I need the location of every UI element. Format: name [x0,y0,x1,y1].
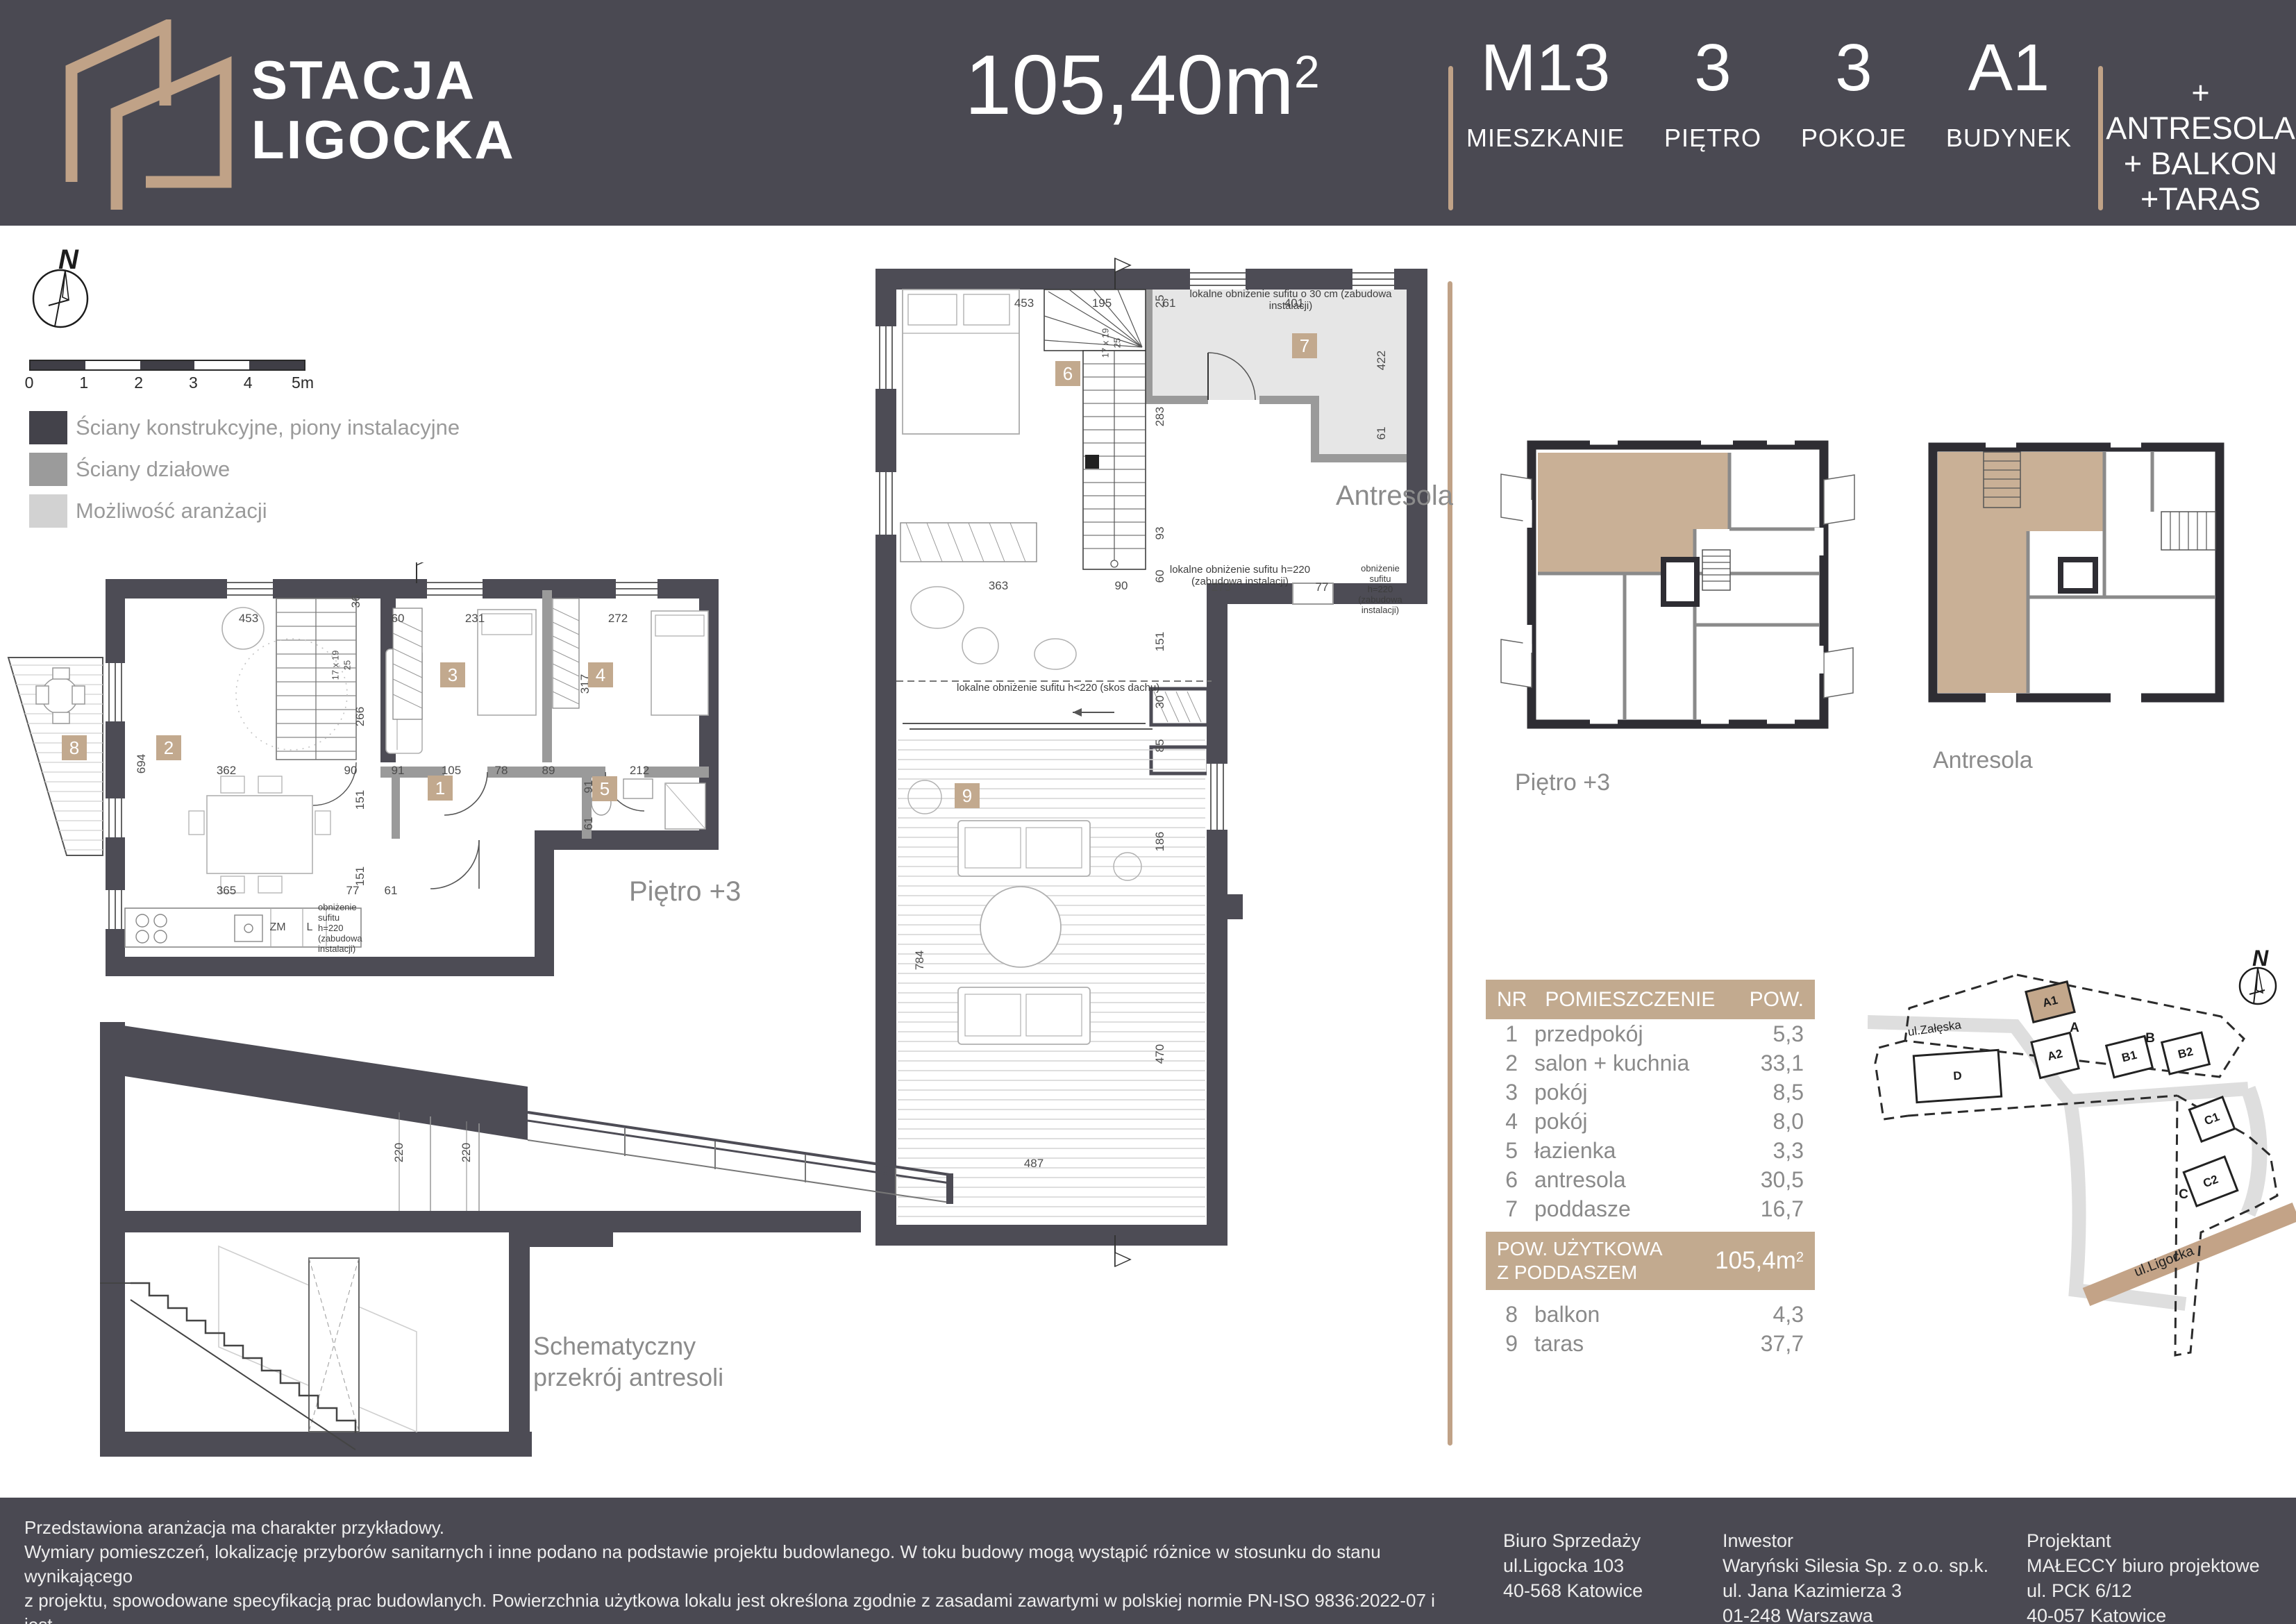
header-stat: M13MIESZKANIE [1466,33,1625,153]
room-number-badge: 4 [588,662,613,687]
building-plan-antresola-overview [1920,434,2232,767]
note-line: obniżenie [318,903,364,913]
scalebar-segment [85,361,140,369]
footer-line: Biuro Sprzedaży [1503,1528,1643,1553]
dim-label: 61 [385,884,398,898]
scalebar-label: 2 [134,374,143,392]
dim-label: ZM [269,921,285,934]
sitemap-area-label-a: A [2070,1021,2079,1036]
stat-value: 3 [1664,33,1761,103]
note-line: (zabudowa instalacji) [1156,576,1324,587]
scalebar-label: 1 [79,374,88,392]
cell-name: poddasze [1534,1196,1631,1222]
brand-logo-icon [56,19,237,222]
dim-label: 212 [630,764,649,778]
note-line: sufitu h=220 [318,913,364,934]
room-table-rows: 1przedpokój5,32salon + kuchnia33,13pokój… [1486,1019,1815,1223]
dim-label: 61 [1375,427,1389,440]
header-stat: 3POKOJE [1801,33,1907,153]
ceiling-note: lokalne obniżenie sufitu o 30 cm (zabudo… [1182,288,1399,312]
disclaimer: Przedstawiona aranżacja ma charakter prz… [24,1516,1455,1624]
stat-value: A1 [1946,33,2072,103]
legend-item: Ściany konstrukcyjne, piony instalacyjne [29,411,460,444]
table-row: 6antresola30,5 [1486,1165,1815,1194]
dim-label: 17 x 19 [330,651,341,680]
dim-label: 151 [1153,632,1167,651]
cell-name: balkon [1534,1302,1600,1328]
room-number-badge: 3 [440,662,465,687]
wall-legend: Ściany konstrukcyjne, piony instalacyjne… [29,411,460,536]
header-stats: M13MIESZKANIE3PIĘTRO3POKOJEA1BUDYNEK [1466,33,2072,153]
dim-label: 186 [1153,832,1167,851]
cell-name: antresola [1534,1167,1626,1193]
table-row: 1przedpokój5,3 [1486,1019,1815,1048]
cell-name: taras [1534,1331,1584,1357]
dim-label: 220 [460,1143,474,1162]
legend-swatch [29,411,67,444]
table-summary: POW. UŻYTKOWA Z PODDASZEM 105,4m2 [1486,1232,1815,1290]
header-extras: + ANTRESOLA+ BALKON+TARAS [2105,75,2296,217]
section-label-line: Schematyczny [533,1330,723,1362]
stat-label: POKOJE [1801,124,1907,153]
legend-item: Ściany działowe [29,453,460,486]
note-line: h=220 [1350,585,1411,595]
cell-nr: 1 [1497,1021,1518,1047]
stat-value: M13 [1466,33,1625,103]
dim-label: 85 [1153,739,1167,753]
dim-label: 220 [392,1143,406,1162]
table-row: 4pokój8,0 [1486,1107,1815,1136]
dim-label: 195 [1092,296,1112,310]
legend-swatch [29,453,67,486]
brand-name: STACJA LIGOCKA [251,50,516,169]
footer-line: 40-057 Katowice [2027,1603,2260,1624]
dim-label: 363 [989,579,1008,593]
footer-line: 40-568 Katowice [1503,1578,1643,1603]
dim-label: 61 [582,817,596,830]
note-line: instalacji) [1350,605,1411,616]
header-divider [2098,66,2103,210]
scalebar-segment [140,361,195,369]
cell-pow: 4,3 [1773,1302,1804,1328]
legend-label: Ściany działowe [76,457,230,482]
dim-label: 231 [465,612,485,626]
col-name: POMIESZCZENIE [1545,988,1715,1012]
footer-line: ul. Jana Kazimierza 3 [1723,1578,1988,1603]
stat-label: MIESZKANIE [1466,124,1625,153]
summary-label: POW. UŻYTKOWA Z PODDASZEM [1497,1237,1663,1284]
dim-label: 151 [353,867,367,886]
cell-nr: 4 [1497,1109,1518,1135]
sitemap-n-label: N [2252,946,2268,971]
cell-nr: 3 [1497,1080,1518,1105]
header-extra-line: + ANTRESOLA [2105,75,2296,146]
cell-nr: 2 [1497,1050,1518,1076]
footer-line: Waryński Silesia Sp. z o.o. sp.k. [1723,1553,1988,1578]
cell-name: pokój [1534,1109,1588,1135]
vertical-divider [1448,281,1452,1446]
dim-label: 78 [495,764,508,778]
dim-label: 17 x 19 [1100,328,1111,358]
building-plan-pietro3-overview [1493,437,1861,764]
cell-pow: 33,1 [1761,1050,1804,1076]
scalebar-segment [194,361,249,369]
cell-name: salon + kuchnia [1534,1050,1689,1076]
footer-line: MAŁECCY biuro projektowe [2027,1553,2260,1578]
room-number-badge: 5 [592,776,617,801]
scale-bar [29,360,305,371]
stat-value: 3 [1801,33,1907,103]
dim-label: 694 [135,754,149,773]
floor-plan-pietro3 [0,562,778,1000]
cell-name: przedpokój [1534,1021,1643,1047]
dim-label: 266 [353,707,367,726]
ceiling-note: obniżenie sufituh=220(zabudowainstalacji… [1350,564,1411,616]
cell-name: łazienka [1534,1138,1616,1164]
footer-line: ul. PCK 6/12 [2027,1578,2260,1603]
cell-pow: 3,3 [1773,1138,1804,1164]
room-number-badge: 8 [62,735,87,760]
cell-pow: 8,5 [1773,1080,1804,1105]
cell-nr: 7 [1497,1196,1518,1222]
scalebar-label: 0 [25,374,34,392]
cell-pow: 30,5 [1761,1167,1804,1193]
legend-label: Możliwość aranżacji [76,499,267,524]
scalebar-segment [249,361,304,369]
note-line: (zabudowa [318,934,364,944]
note-line: lokalne obniżenie sufitu h<220 (skos dac… [957,682,1234,694]
dim-label: 60 [392,612,405,626]
note-line: obniżenie sufitu [1350,564,1411,585]
section-drawing [69,1014,979,1468]
header-extra-line: +TARAS [2105,181,2296,217]
dim-label: 283 [1153,407,1167,426]
table-row: 8balkon4,3 [1486,1300,1815,1329]
room-number-badge: 9 [955,783,980,808]
dim-label: 89 [542,764,555,778]
summary-value: 105,4m2 [1715,1247,1804,1275]
cell-nr: 5 [1497,1138,1518,1164]
dim-label: 90 [344,764,358,778]
ceiling-note: lokalne obniżenie sufitu h<220 (skos dac… [957,682,1234,694]
footer-line: Projektant [2027,1528,2260,1553]
scalebar-label: 3 [189,374,198,392]
note-line: lokalne obniżenie sufitu o 30 cm (zabudo… [1182,288,1399,312]
dim-label: 93 [1153,527,1167,540]
table-row: 2salon + kuchnia33,1 [1486,1048,1815,1078]
legend-swatch [29,494,67,528]
col-pow: POW. [1750,988,1804,1012]
compass-n-label: N [58,244,78,276]
dim-label: L [307,921,313,934]
table-row: 3pokój8,5 [1486,1078,1815,1107]
room-number-badge: 7 [1292,333,1317,358]
scalebar-label: 4 [244,374,253,392]
dim-label: 90 [1115,579,1128,593]
ceiling-note: obniżeniesufitu h=220(zabudowainstalacji… [318,903,364,955]
room-number-badge: 2 [156,735,181,760]
dim-label: 151 [353,790,367,810]
dim-label: 422 [1375,351,1389,370]
footer-column: InwestorWaryński Silesia Sp. z o.o. sp.k… [1723,1528,1988,1624]
scalebar-segment [31,361,85,369]
legend-label: Ściany konstrukcyjne, piony instalacyjne [76,415,460,440]
brand-line2: LIGOCKA [251,110,516,169]
col-nr: NR [1497,988,1527,1012]
room-number-badge: 1 [428,776,453,801]
dim-label: 470 [1153,1044,1167,1064]
disclaimer-line: Przedstawiona aranżacja ma charakter prz… [24,1516,1455,1540]
ceiling-note: lokalne obniżenie sufitu h=220(zabudowa … [1156,564,1324,588]
header-divider [1448,66,1453,210]
note-line: instalacji) [318,944,364,955]
plan-label: Piętro +3 [629,876,741,907]
cell-pow: 5,3 [1773,1021,1804,1047]
plan-sheet: STACJA LIGOCKA 105,40m2 M13MIESZKANIE3PI… [0,0,2296,1624]
dim-label: 91 [392,764,405,778]
compass-rose [28,265,104,335]
dim-label: 36 [349,595,363,608]
footer-column: Biuro Sprzedażyul.Ligocka 10340-568 Kato… [1503,1528,1643,1603]
disclaimer-line: Wymiary pomieszczeń, lokalizację przybor… [24,1540,1455,1589]
plan-label: Antresola [1933,747,2033,774]
room-number-badge: 6 [1055,361,1080,386]
header-bar: STACJA LIGOCKA 105,40m2 M13MIESZKANIE3PI… [0,0,2296,226]
dim-label: 453 [239,612,258,626]
dim-label: 25 [342,660,353,670]
cell-nr: 6 [1497,1167,1518,1193]
sitemap-area-label-c: C [2179,1187,2188,1203]
cell-name: pokój [1534,1080,1588,1105]
brand-line1: STACJA [251,50,516,110]
note-line: lokalne obniżenie sufitu h=220 [1156,564,1324,576]
cell-nr: 8 [1497,1302,1518,1328]
footer-line: ul.Ligocka 103 [1503,1553,1643,1578]
dim-label: 272 [608,612,628,626]
footer-line: 01-248 Warszawa [1723,1603,1988,1624]
header-stat: A1BUDYNEK [1946,33,2072,153]
header-stat: 3PIĘTRO [1664,33,1761,153]
room-table-header: NR POMIESZCZENIE POW. [1486,980,1815,1019]
footer-bar: Przedstawiona aranżacja ma charakter prz… [0,1498,2296,1624]
cell-pow: 37,7 [1761,1331,1804,1357]
dim-label: 25 [1112,338,1123,348]
disclaimer-line: z projektu, spowodowane specyfikacją pra… [24,1589,1455,1624]
plan-label: Antresola [1336,480,1453,512]
table-row: 9taras37,7 [1486,1329,1815,1358]
dim-label: 453 [1014,296,1034,310]
footer-column: ProjektantMAŁECCY biuro projektoweul. PC… [2027,1528,2260,1624]
dim-label: 77 [346,884,360,898]
dim-label: 365 [217,884,236,898]
table-row: 5łazienka3,3 [1486,1136,1815,1165]
sitemap-area-label-b: B [2145,1031,2155,1046]
room-table: NR POMIESZCZENIE POW. 1przedpokój5,32sal… [1486,980,1815,1358]
room-table-extra-rows: 8balkon4,39taras37,7 [1486,1300,1815,1358]
dim-label: 784 [913,951,927,970]
note-line: (zabudowa [1350,595,1411,605]
legend-item: Możliwość aranżacji [29,494,460,528]
header-extra-line: + BALKON [2105,146,2296,181]
dim-label: 362 [217,764,236,778]
plan-label: Piętro +3 [1515,769,1610,796]
dim-label: 25 [1153,295,1167,308]
cell-nr: 9 [1497,1331,1518,1357]
section-label: Schematycznyprzekrój antresoli [533,1330,723,1393]
stat-label: PIĘTRO [1664,124,1761,153]
stat-label: BUDYNEK [1946,124,2072,153]
dim-label: 487 [1024,1157,1044,1171]
apartment-area-title: 105,40m2 [868,36,1416,133]
table-row: 7poddasze16,7 [1486,1194,1815,1223]
section-label-line: przekrój antresoli [533,1362,723,1393]
footer-line: Inwestor [1723,1528,1988,1553]
cell-pow: 16,7 [1761,1196,1804,1222]
sitemap-building-d: D [1912,1049,2002,1104]
cell-pow: 8,0 [1773,1109,1804,1135]
dim-label: 30 [1153,696,1167,709]
scalebar-label: 5m [292,374,314,392]
